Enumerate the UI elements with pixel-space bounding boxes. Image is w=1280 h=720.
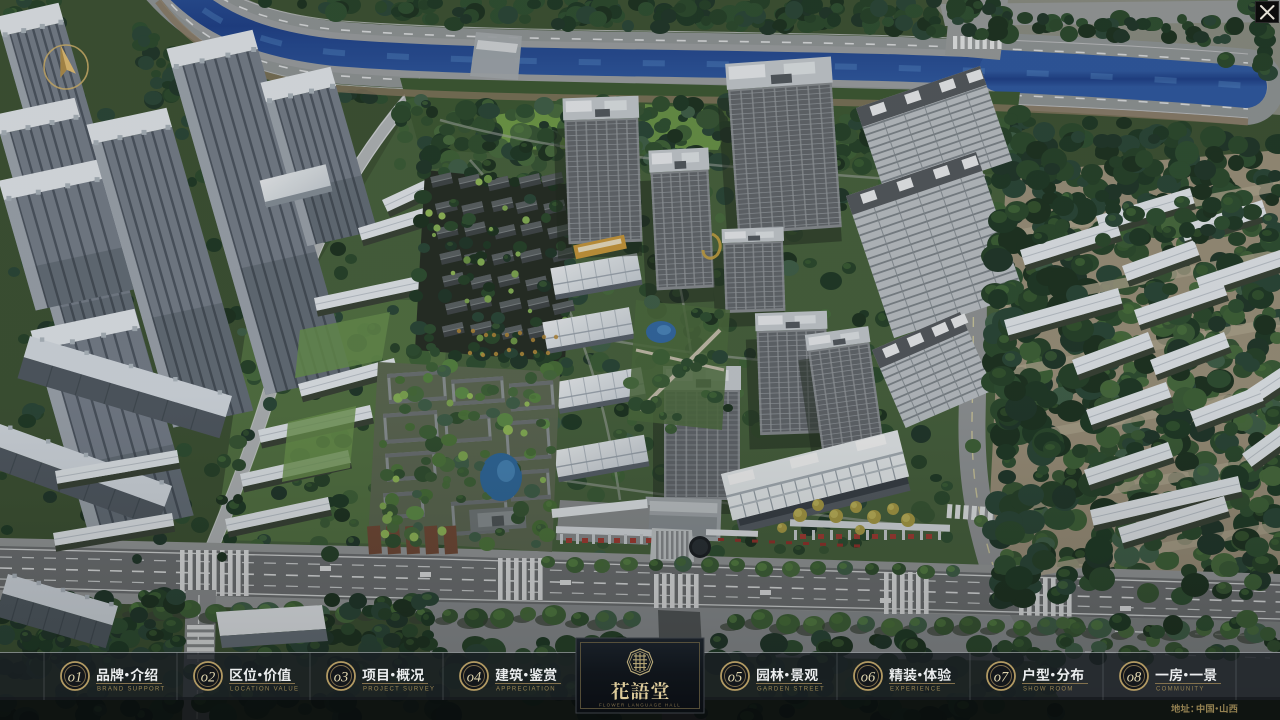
svg-text:o6: o6 [861, 670, 876, 686]
svg-text:PROJECT SURVEY: PROJECT SURVEY [363, 687, 435, 693]
svg-text:o5: o5 [728, 670, 743, 686]
svg-text:o3: o3 [334, 670, 349, 686]
svg-text:o8: o8 [1127, 670, 1142, 686]
svg-text:COMMUNITY: COMMUNITY [1156, 687, 1205, 693]
svg-text:o4: o4 [467, 670, 482, 686]
svg-text:o7: o7 [994, 670, 1009, 686]
svg-text:BRAND SUPPORT: BRAND SUPPORT [97, 687, 165, 693]
svg-text:SHOW ROOM: SHOW ROOM [1023, 687, 1074, 693]
svg-text:FLOWER LANGUAGE HALL: FLOWER LANGUAGE HALL [599, 703, 681, 708]
svg-text:EXPERIENCE: EXPERIENCE [890, 687, 942, 693]
svg-text:o1: o1 [68, 670, 83, 686]
svg-text:LOCATION VALUE: LOCATION VALUE [230, 687, 299, 693]
svg-text:o2: o2 [201, 670, 216, 686]
svg-text:GARDEN STREET: GARDEN STREET [757, 687, 825, 693]
svg-text:APPRECIATION: APPRECIATION [496, 687, 556, 693]
